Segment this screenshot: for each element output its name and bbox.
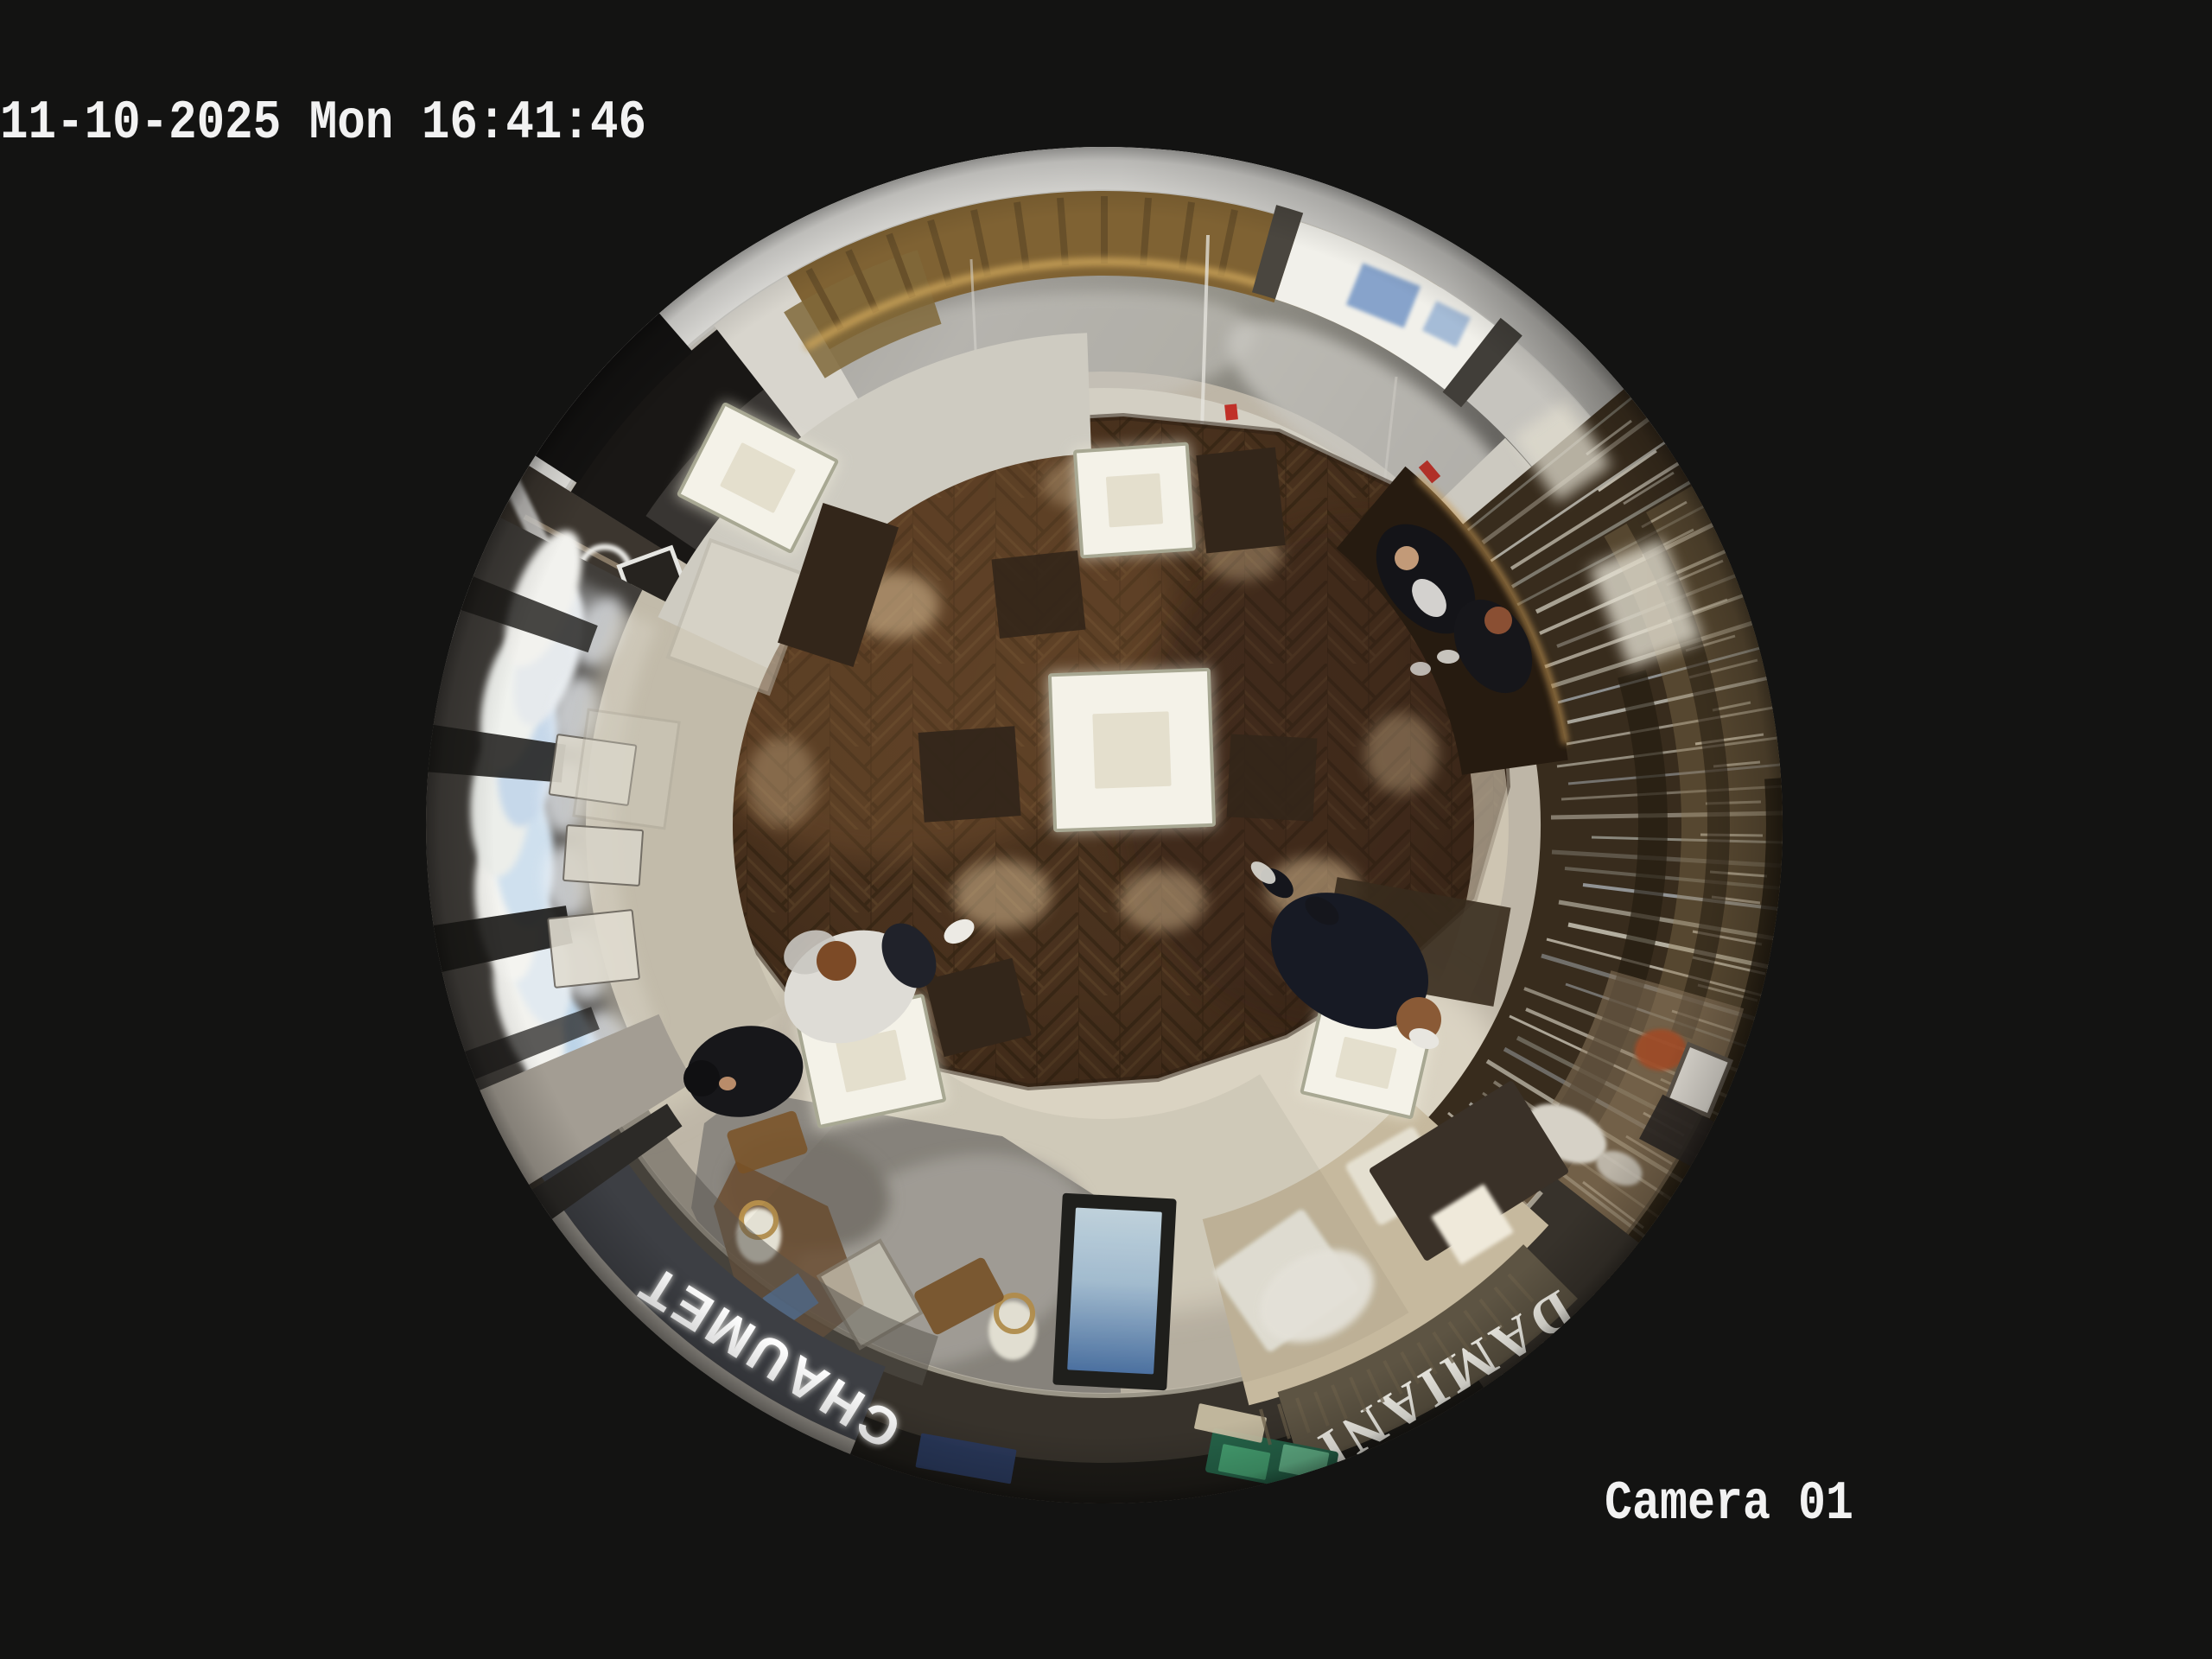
svg-text:11-10-2025 Mon 16:41:46: 11-10-2025 Mon 16:41:46 <box>0 92 646 154</box>
svg-text:Camera 01: Camera 01 <box>1605 1473 1853 1535</box>
